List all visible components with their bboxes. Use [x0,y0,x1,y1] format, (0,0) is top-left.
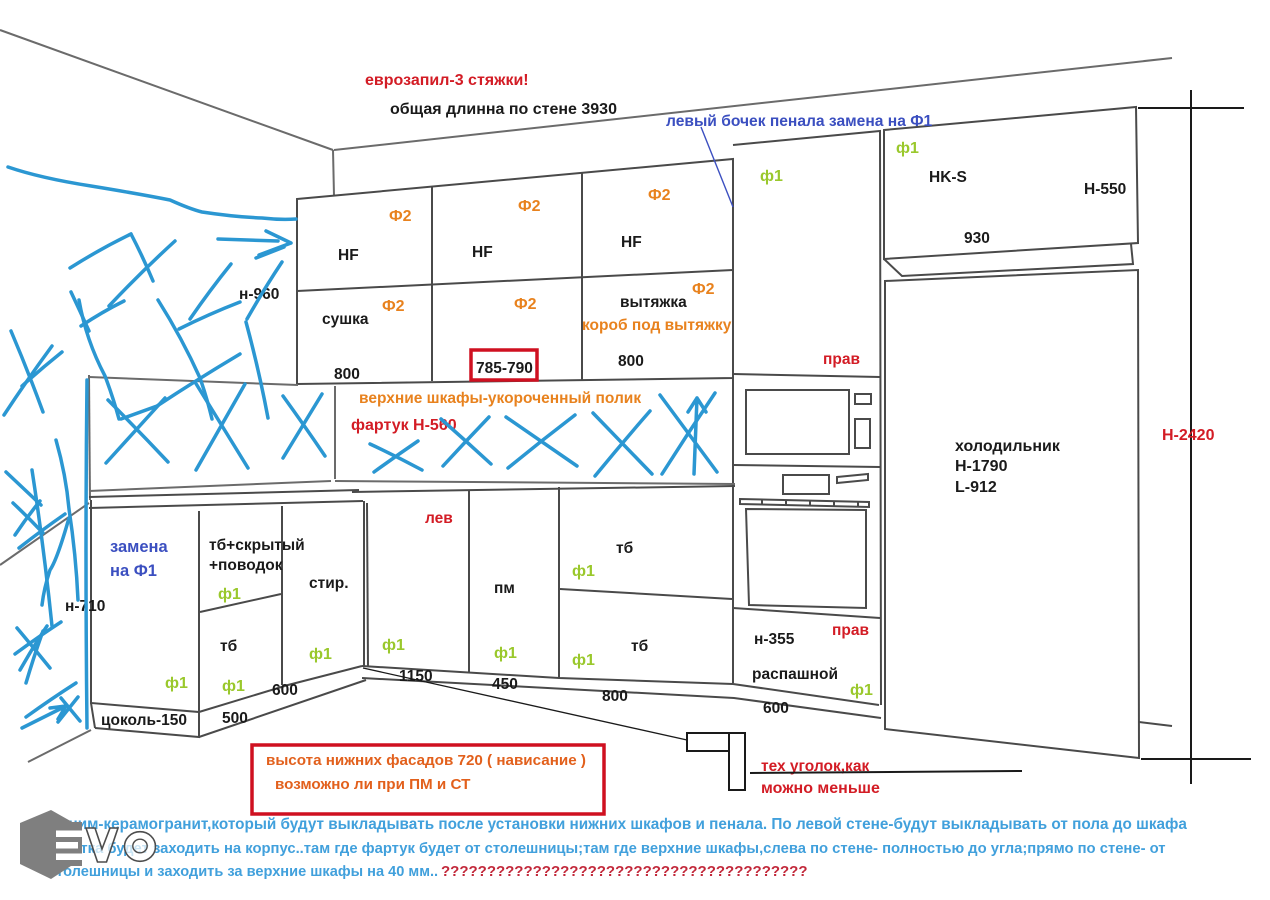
svg-text:Ф2: Ф2 [648,187,671,204]
svg-text:короб под вытяжку: короб под вытяжку [582,317,732,334]
svg-text:Ф2: Ф2 [389,208,412,225]
svg-text:столешницы и заходить за верхн: столешницы и заходить за верхние шкафы н… [48,864,438,880]
svg-text:пм: пм [494,580,515,597]
svg-text:лев: лев [425,510,453,527]
svg-text:HF: HF [621,234,642,251]
svg-text:ф1: ф1 [165,675,188,692]
svg-text:ф1: ф1 [222,678,245,695]
svg-text:HF: HF [472,244,493,261]
svg-text:800: 800 [602,688,628,705]
svg-text:??????????????????????????????: ???????????????????????????????????????? [441,863,808,880]
svg-text:ф1: ф1 [572,652,595,669]
svg-text:+поводок: +поводок [209,557,283,574]
svg-text:тб: тб [616,540,633,557]
svg-text:600: 600 [763,700,789,717]
svg-text:HK-S: HK-S [929,169,967,186]
svg-text:можно меньше: можно меньше [761,780,880,797]
svg-text:800: 800 [334,366,360,383]
svg-text:сушка: сушка [322,311,369,328]
svg-text:прав: прав [823,351,860,368]
svg-text:н-355: н-355 [754,631,795,648]
svg-text:ф1: ф1 [309,646,332,663]
svg-text:высота нижних фасадов 720 ( на: высота нижних фасадов 720 ( нависание ) [266,752,586,769]
svg-text:Синим-керамогранит,который буд: Синим-керамогранит,который будут выклады… [48,816,1187,833]
svg-text:замена: замена [110,538,169,556]
svg-text:Н-550: Н-550 [1084,181,1126,198]
svg-text:600: 600 [272,682,298,699]
svg-text:ф1: ф1 [760,168,783,185]
svg-text:вытяжка: вытяжка [620,294,687,311]
svg-text:ф1: ф1 [494,645,517,662]
svg-text:930: 930 [964,230,990,247]
svg-text:Ф2: Ф2 [514,296,537,313]
svg-text:Ф2: Ф2 [382,298,405,315]
svg-text:возможно ли при ПМ и СТ: возможно ли при ПМ и СТ [275,776,471,793]
svg-text:HF: HF [338,247,359,264]
svg-text:прав: прав [832,622,869,639]
svg-text:800: 800 [618,353,644,370]
svg-text:785-790: 785-790 [476,360,533,377]
svg-text:450: 450 [492,676,518,693]
svg-text:холодильник: холодильник [955,438,1061,455]
svg-text:верхние шкафы-укороченный поли: верхние шкафы-укороченный полик [359,390,641,407]
svg-text:Ф2: Ф2 [692,281,715,298]
svg-text:тб: тб [631,638,648,655]
svg-text:500: 500 [222,710,248,727]
svg-text:цоколь-150: цоколь-150 [101,712,187,729]
svg-text:L-912: L-912 [955,479,997,496]
svg-text:Н-1790: Н-1790 [955,458,1008,475]
svg-text:общая длинна по стене 3930: общая длинна по стене 3930 [390,101,617,118]
svg-text:ф1: ф1 [382,637,405,654]
svg-text:распашной: распашной [752,666,838,683]
svg-text:левый бочек пенала замена на Ф: левый бочек пенала замена на Ф1 [666,113,933,130]
svg-text:Н-2420: Н-2420 [1162,427,1215,444]
svg-text:ф1: ф1 [896,140,919,157]
svg-text:ф1: ф1 [218,586,241,603]
svg-text:1150: 1150 [399,668,433,685]
svg-text:тб: тб [220,638,237,655]
svg-text:(плитка будет заходить на корп: (плитка будет заходить на корпус..там гд… [48,841,1166,857]
svg-text:тб+скрытый: тб+скрытый [209,537,305,554]
svg-text:еврозапил-3 стяжки!: еврозапил-3 стяжки! [365,72,529,89]
svg-text:ф1: ф1 [850,682,873,699]
svg-text:на Ф1: на Ф1 [110,562,157,580]
svg-text:Ф2: Ф2 [518,198,541,215]
svg-text:стир.: стир. [309,575,349,592]
svg-text:ф1: ф1 [572,563,595,580]
